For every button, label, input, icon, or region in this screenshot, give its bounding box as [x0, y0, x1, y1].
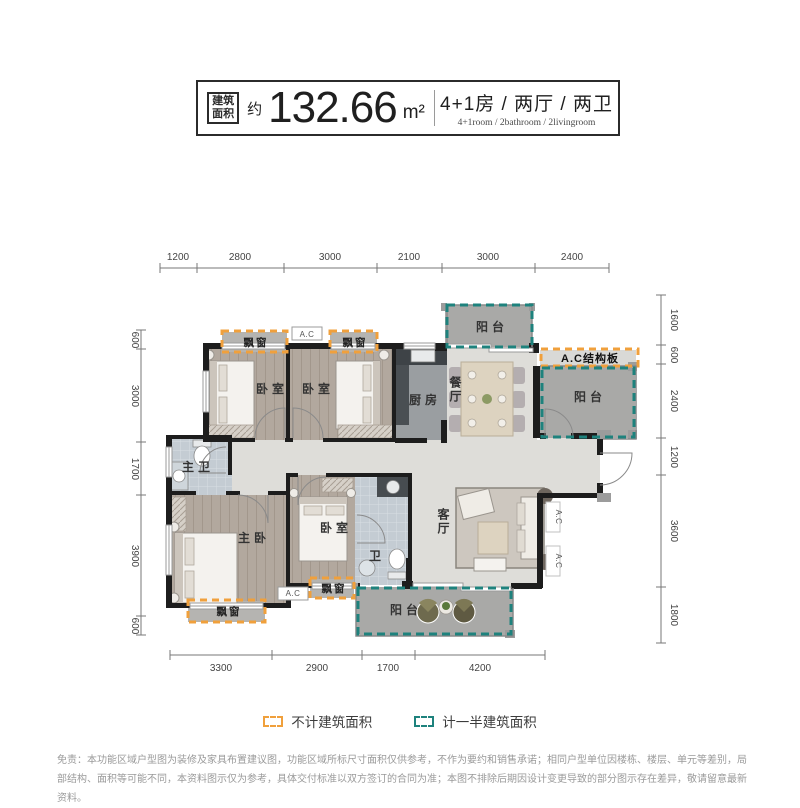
dim-label: 1800	[668, 604, 679, 627]
orange-dashed-swatch	[263, 716, 283, 727]
wardrobe-icon	[338, 425, 393, 438]
dim-label: 600	[129, 332, 140, 349]
ac-label: A.C	[554, 510, 563, 525]
legend-item-half-counted: 计一半建筑面积	[414, 711, 537, 731]
legend: 不计建筑面积 计一半建筑面积	[0, 711, 800, 731]
legend-item-not-counted: 不计建筑面积	[263, 711, 372, 731]
bedroom-label: 卧室	[320, 520, 352, 535]
ac-label: A.C	[300, 330, 315, 339]
dim-label: 2100	[398, 252, 421, 263]
dim-label: 600	[668, 347, 679, 364]
bay-window-label: 飘窗	[343, 336, 368, 349]
bay-window-label: 飘窗	[244, 336, 269, 349]
master-bedroom-label: 主卧	[238, 530, 270, 545]
bedroom-label: 卧室	[302, 381, 334, 396]
bedroom-label: 卧室	[256, 381, 288, 396]
balcony-label: 阳台	[390, 602, 422, 617]
balcony-label: 阳台	[574, 389, 606, 404]
dim-label: 600	[129, 618, 140, 635]
ac-board-label: A.C结构板	[561, 351, 619, 365]
dim-label: 1700	[129, 458, 140, 481]
dim-label: 2400	[561, 252, 584, 263]
dim-label: 3000	[319, 252, 342, 263]
dim-label: 2400	[668, 390, 679, 413]
dim-label: 1200	[167, 252, 190, 263]
dim-label: 1200	[668, 446, 679, 469]
master-bath-label: 主卫	[182, 459, 214, 474]
vanity-icon	[377, 477, 410, 497]
legend-label: 计一半建筑面积	[442, 711, 537, 731]
ac-label: A.C	[554, 554, 563, 569]
legend-label: 不计建筑面积	[291, 711, 372, 731]
bed-icon	[169, 522, 237, 603]
dining-label: 餐厅	[448, 375, 462, 404]
bay-window-label: 飘窗	[217, 605, 242, 618]
dim-label: 3000	[477, 252, 500, 263]
dim-label: 2900	[306, 663, 329, 674]
dim-label: 2800	[229, 252, 252, 263]
dim-label: 3900	[129, 545, 140, 568]
living-label: 客厅	[436, 507, 450, 536]
dim-label: 3300	[210, 663, 233, 674]
floor-plan: A.C A.C A.C A.C 飘窗 飘窗 飘窗 飘窗 卧室 卧室 阳台 厨房 …	[0, 0, 800, 805]
bay-window-label: 飘窗	[322, 582, 347, 595]
balcony-label: 阳台	[476, 319, 508, 334]
dim-label: 4200	[469, 663, 492, 674]
dim-label: 1600	[668, 309, 679, 332]
bath-label: 卫	[369, 549, 385, 563]
teal-dashed-swatch	[414, 716, 434, 727]
dim-label: 1700	[377, 663, 400, 674]
ac-label: A.C	[286, 589, 301, 598]
dim-label: 3000	[129, 385, 140, 408]
disclaimer-text: 免责：本功能区域户型图为装修及家具布置建议图，功能区域所标尺寸面积仅供参考，不作…	[57, 751, 747, 808]
kitchen-label: 厨房	[409, 392, 441, 407]
dim-label: 3600	[668, 520, 679, 543]
